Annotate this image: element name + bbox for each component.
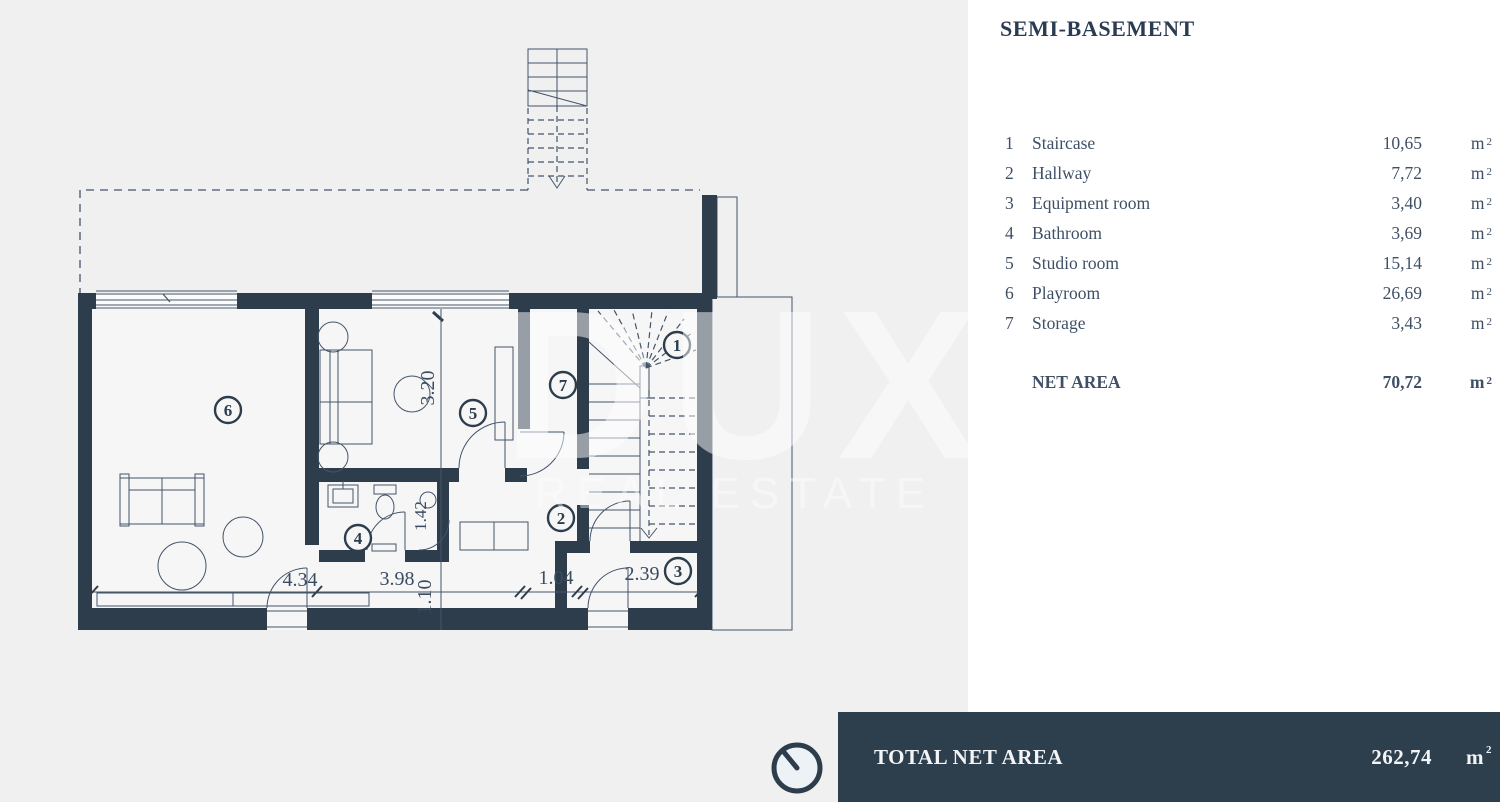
room-number: 4: [1005, 218, 1032, 248]
svg-text:1.10: 1.10: [414, 580, 436, 615]
svg-text:3.20: 3.20: [417, 371, 439, 406]
room-badge-5: 5: [460, 400, 486, 426]
room-area: 15,14: [1342, 248, 1422, 278]
area-row: 3 Equipment room 3,40 m2: [1005, 188, 1492, 218]
window-top-left: [96, 291, 237, 309]
svg-text:1.04: 1.04: [539, 567, 574, 589]
total-area-unit: m2: [1432, 745, 1492, 770]
room-number: 5: [1005, 248, 1032, 278]
room-unit: m2: [1422, 308, 1492, 338]
net-area-label: NET AREA: [1032, 367, 1342, 397]
svg-text:3.98: 3.98: [380, 568, 415, 590]
room-label: Storage: [1032, 308, 1342, 338]
svg-text:REAL ESTATE: REAL ESTATE: [535, 469, 935, 518]
room-area: 26,69: [1342, 278, 1422, 308]
room-label: Equipment room: [1032, 188, 1342, 218]
room-number: 2: [1005, 158, 1032, 188]
svg-text:DUX: DUX: [503, 266, 968, 503]
room-unit: m2: [1422, 158, 1492, 188]
screenshot-root: 4.34 3.98 1.10 1.04 2.39 3.20 1.42 1 2 3…: [0, 0, 1500, 802]
area-table: 1 Staircase 10,65 m2 2 Hallway 7,72 m2 3…: [1005, 128, 1492, 338]
room-unit: m2: [1422, 248, 1492, 278]
area-row: 7 Storage 3,43 m2: [1005, 308, 1492, 338]
total-area-value: 262,74: [1322, 745, 1432, 770]
room-area: 3,43: [1342, 308, 1422, 338]
room-area: 10,65: [1342, 128, 1422, 158]
area-row: 2 Hallway 7,72 m2: [1005, 158, 1492, 188]
room-unit: m2: [1422, 278, 1492, 308]
room-label: Staircase: [1032, 128, 1342, 158]
watermark: DUX REAL ESTATE: [503, 266, 968, 518]
net-area-row: NET AREA 70,72 m2: [1005, 367, 1492, 397]
room-number: 6: [1005, 278, 1032, 308]
area-row: 4 Bathroom 3,69 m2: [1005, 218, 1492, 248]
room-number: 3: [1005, 188, 1032, 218]
room-label: Playroom: [1032, 278, 1342, 308]
room-label: Hallway: [1032, 158, 1342, 188]
area-row: 5 Studio room 15,14 m2: [1005, 248, 1492, 278]
net-area-value: 70,72: [1342, 367, 1422, 397]
total-area-label: TOTAL NET AREA: [874, 745, 1322, 770]
page-title: SEMI-BASEMENT: [1000, 16, 1500, 42]
room-area: 3,69: [1342, 218, 1422, 248]
svg-text:5: 5: [469, 404, 478, 423]
room-unit: m2: [1422, 188, 1492, 218]
room-area: 3,40: [1342, 188, 1422, 218]
svg-text:6: 6: [224, 401, 233, 420]
svg-text:3: 3: [674, 562, 683, 581]
room-badge-3: 3: [665, 558, 691, 584]
svg-text:4.34: 4.34: [283, 569, 318, 591]
floorplan-panel: 4.34 3.98 1.10 1.04 2.39 3.20 1.42 1 2 3…: [0, 0, 968, 802]
area-row: 1 Staircase 10,65 m2: [1005, 128, 1492, 158]
legend-panel: SEMI-BASEMENT 1 Staircase 10,65 m2 2 Hal…: [968, 0, 1500, 802]
room-label: Bathroom: [1032, 218, 1342, 248]
room-area: 7,72: [1342, 158, 1422, 188]
room-badge-6: 6: [215, 397, 241, 423]
room-unit: m2: [1422, 218, 1492, 248]
svg-text:4: 4: [354, 529, 363, 548]
room-number: 1: [1005, 128, 1032, 158]
room-number: 7: [1005, 308, 1032, 338]
total-area-bar: TOTAL NET AREA 262,74 m2: [838, 712, 1500, 802]
svg-text:1.42: 1.42: [411, 501, 430, 531]
room-unit: m2: [1422, 128, 1492, 158]
area-row: 6 Playroom 26,69 m2: [1005, 278, 1492, 308]
floorplan-drawing: 4.34 3.98 1.10 1.04 2.39 3.20 1.42 1 2 3…: [0, 0, 968, 802]
net-area-unit: m2: [1422, 367, 1492, 397]
room-label: Studio room: [1032, 248, 1342, 278]
clock-icon: [769, 740, 825, 796]
room-badge-4: 4: [345, 525, 371, 551]
exterior-staircase: [528, 49, 587, 190]
svg-text:2.39: 2.39: [625, 563, 660, 585]
